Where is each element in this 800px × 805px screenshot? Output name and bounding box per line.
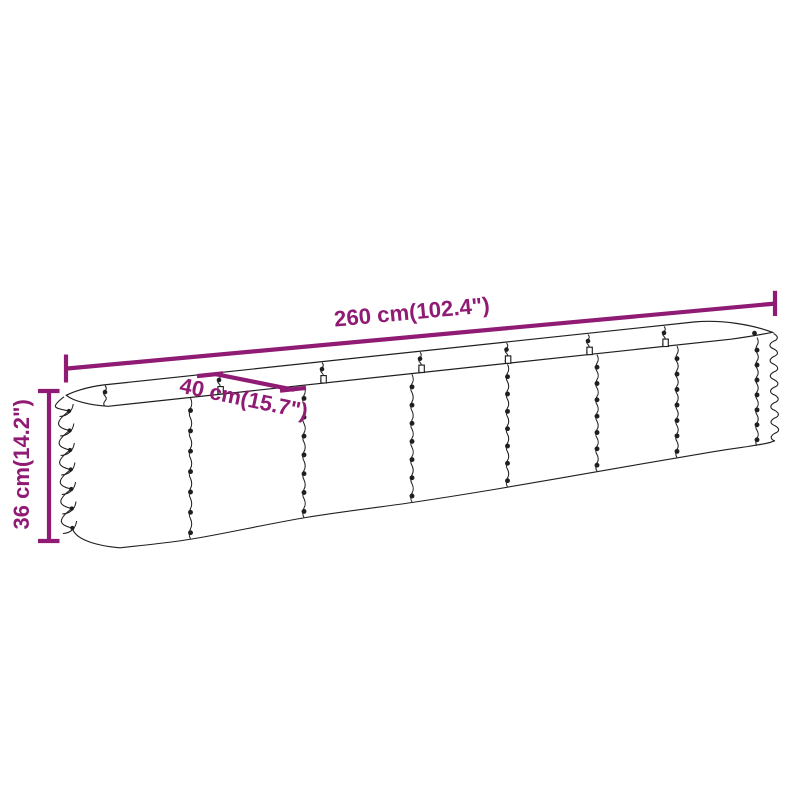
svg-text:36 cm(14.2"): 36 cm(14.2")	[9, 399, 34, 529]
svg-text:260 cm(102.4"): 260 cm(102.4")	[333, 292, 491, 331]
